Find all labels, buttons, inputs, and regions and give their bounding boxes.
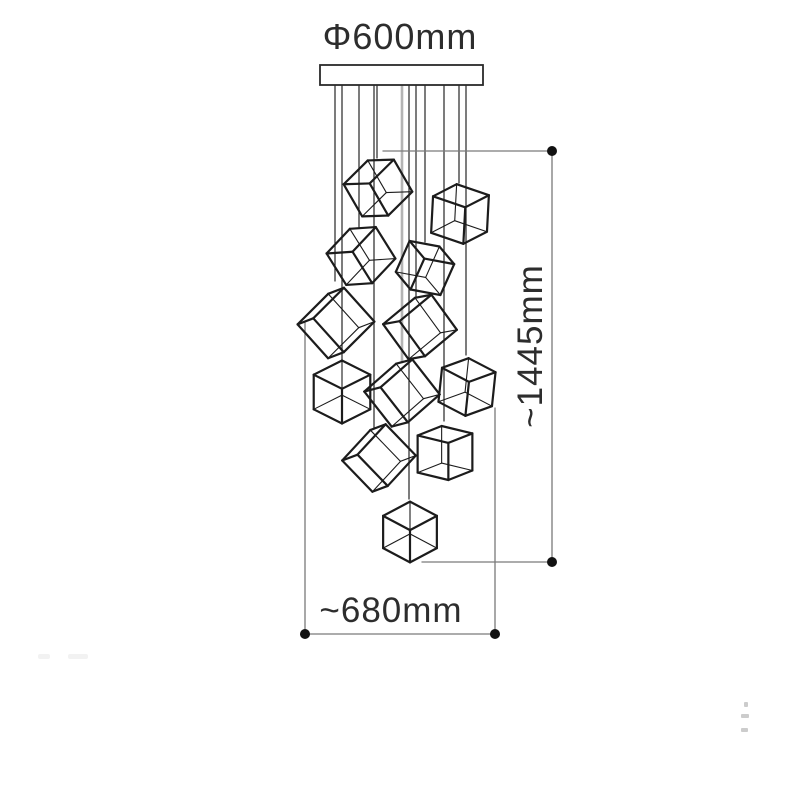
pendant-cube-edge <box>383 534 410 548</box>
width-dimension-dot <box>490 629 500 639</box>
artifact-speck <box>741 714 749 718</box>
pendant-cube-edge <box>376 227 396 258</box>
pendant-cube-edge <box>418 473 449 480</box>
ceiling-canopy <box>320 65 483 85</box>
pendant-cube-edge <box>438 368 442 402</box>
pendant-cube-edge <box>431 233 463 244</box>
pendant-cube-edge <box>314 395 342 409</box>
artifact-speck <box>741 728 748 732</box>
artifact-smudge <box>68 654 88 659</box>
height-dimension-dot <box>547 557 557 567</box>
pendant-cube-edge <box>344 322 375 353</box>
pendant-cube-edge <box>469 358 496 372</box>
pendant-cube-edge <box>425 330 457 356</box>
chandelier-line-drawing <box>0 0 800 800</box>
pendant-cube-edge <box>492 372 496 406</box>
pendant-cube-edge <box>457 184 489 195</box>
pendant-cube-edge <box>372 259 395 284</box>
pendant-cube-edge <box>314 409 342 423</box>
chandelier-dimension-diagram: Φ600mm ~1445mm ~680mm <box>0 0 800 800</box>
pendant-cube-edge <box>463 232 487 244</box>
pendant-cube-edge <box>440 264 454 295</box>
pendant-cube-edge <box>342 375 370 389</box>
pendant-cube-edge <box>438 402 465 416</box>
pendant-cube-edge <box>342 361 370 375</box>
width-dimension-dot <box>300 629 310 639</box>
pendant-cube-edge <box>410 534 437 548</box>
pendant-cube-edge <box>438 392 465 402</box>
pendant-cube-edge <box>327 229 350 254</box>
artifact-speck <box>744 702 748 707</box>
pendant-cube-edge <box>431 221 455 233</box>
pendant-cube-edge <box>350 227 376 229</box>
pendant-cube-edge <box>448 471 472 480</box>
pendant-cube-edge <box>314 361 342 375</box>
pendant-cube-edge <box>442 358 469 368</box>
pendant-cube-edge <box>418 435 449 442</box>
width-dimension-label: ~680mm <box>319 591 462 631</box>
pendant-cube-edge <box>327 253 347 284</box>
pendant-cube-edge <box>410 502 437 516</box>
pendant-cube-edge <box>368 160 394 161</box>
pendant-cube-edge <box>465 195 489 207</box>
pendant-cube-edge <box>314 375 342 389</box>
pendant-cube-edge <box>469 372 496 382</box>
pendant-cube-edge <box>487 195 489 231</box>
pendant-cube-edge <box>353 252 373 283</box>
pendant-cube-edge <box>465 406 492 416</box>
pendant-cube-edge <box>465 392 492 406</box>
pendant-cube-edge <box>344 183 370 184</box>
height-dimension-dot <box>547 146 557 156</box>
pendant-cube-edge <box>442 463 473 470</box>
pendant-cube-edge <box>369 259 395 261</box>
pendant-cube-edge <box>442 368 469 382</box>
pendant-cube-edge <box>411 259 425 290</box>
pendant-cube-edge <box>383 548 410 562</box>
pendant-cube-edge <box>368 160 387 192</box>
pendant-cube-edge <box>410 548 437 562</box>
pendant-cube-edge <box>455 184 457 220</box>
pendant-cube-edge <box>433 184 457 196</box>
pendant-cube-edge <box>362 216 388 217</box>
pendant-cube-edge <box>383 502 410 516</box>
pendant-cube-edge <box>455 221 487 232</box>
pendant-cube-edge <box>342 409 370 423</box>
pendant-cube-edge <box>383 516 410 530</box>
artifact-smudge <box>38 654 50 659</box>
pendant-cube-edge <box>327 252 353 254</box>
pendant-cube-edge <box>346 283 372 285</box>
pendant-cube-edge <box>344 160 368 184</box>
pendant-cube-edge <box>410 516 437 530</box>
pendant-cube-edge <box>418 426 442 435</box>
pendant-cube-edge <box>463 207 465 243</box>
pendant-cube-edge <box>442 426 473 433</box>
height-dimension-label: ~1445mm <box>511 264 551 428</box>
pendant-cube-edge <box>342 395 370 409</box>
pendant-cube-edge <box>370 183 389 215</box>
pendant-cube-edge <box>431 196 433 232</box>
pendant-cube-edge <box>350 229 370 260</box>
pendant-cube-edge <box>433 196 465 207</box>
diameter-label: Φ600mm <box>323 16 478 58</box>
pendant-cube-edge <box>448 433 472 442</box>
pendant-cube-edge <box>418 463 442 472</box>
pendant-cube-edge <box>370 160 394 184</box>
